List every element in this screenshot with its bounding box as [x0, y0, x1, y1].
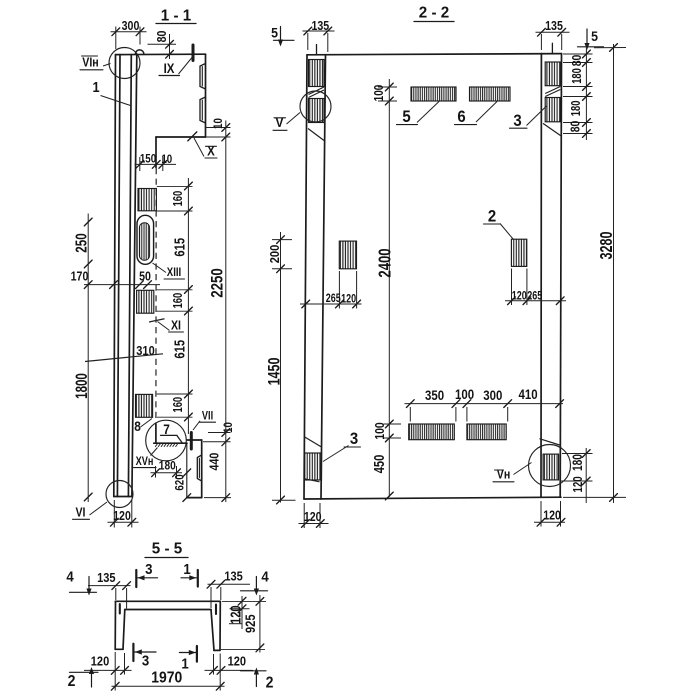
- svg-text:135: 135: [311, 19, 329, 33]
- svg-text:250: 250: [73, 233, 90, 253]
- svg-text:10: 10: [161, 153, 172, 166]
- svg-text:3280: 3280: [597, 231, 617, 259]
- svg-text:2: 2: [266, 674, 274, 692]
- svg-text:1: 1: [92, 79, 99, 95]
- svg-text:200: 200: [267, 245, 282, 264]
- svg-text:180: 180: [570, 454, 586, 471]
- svg-text:1 - 1: 1 - 1: [161, 7, 192, 24]
- svg-text:300: 300: [483, 388, 502, 403]
- svg-text:1: 1: [181, 655, 188, 672]
- svg-text:3: 3: [513, 112, 521, 130]
- svg-text:VI: VI: [75, 506, 85, 520]
- svg-text:180: 180: [570, 101, 584, 117]
- svg-text:80: 80: [568, 120, 582, 132]
- svg-text:120: 120: [572, 476, 586, 492]
- svg-text:615: 615: [171, 340, 188, 359]
- svg-text:10: 10: [212, 118, 225, 129]
- svg-text:160: 160: [172, 293, 186, 309]
- svg-text:120: 120: [543, 509, 561, 523]
- svg-text:XI: XI: [171, 319, 181, 333]
- svg-text:615: 615: [171, 238, 188, 257]
- svg-text:1800: 1800: [73, 373, 92, 399]
- svg-text:120: 120: [91, 653, 110, 668]
- svg-text:1450: 1450: [266, 358, 284, 386]
- svg-text:VIн: VIн: [82, 56, 98, 70]
- svg-text:135: 135: [224, 569, 243, 584]
- svg-text:5: 5: [402, 108, 410, 126]
- svg-text:XVн: XVн: [136, 456, 154, 468]
- svg-text:265: 265: [527, 289, 542, 303]
- svg-text:V: V: [275, 114, 283, 130]
- svg-text:440: 440: [208, 453, 222, 471]
- svg-text:1970: 1970: [151, 670, 182, 687]
- svg-text:5 - 5: 5 - 5: [152, 540, 183, 557]
- svg-text:50: 50: [139, 270, 151, 284]
- svg-text:925: 925: [243, 614, 258, 633]
- svg-text:180: 180: [159, 460, 176, 473]
- svg-text:170: 170: [71, 270, 89, 284]
- svg-text:8: 8: [134, 418, 141, 434]
- svg-text:120: 120: [304, 510, 322, 524]
- svg-text:2: 2: [488, 208, 496, 226]
- svg-text:120: 120: [113, 509, 131, 523]
- svg-text:1: 1: [183, 560, 190, 577]
- svg-text:160: 160: [172, 191, 186, 207]
- svg-text:VII: VII: [202, 411, 213, 423]
- svg-text:120: 120: [228, 653, 247, 668]
- svg-text:100: 100: [455, 387, 474, 402]
- svg-text:3: 3: [145, 560, 152, 577]
- svg-text:180: 180: [571, 68, 585, 84]
- svg-text:6: 6: [457, 108, 465, 126]
- svg-text:135: 135: [545, 19, 563, 33]
- svg-text:150: 150: [140, 153, 156, 166]
- svg-text:XIII: XIII: [167, 266, 181, 279]
- svg-text:300: 300: [122, 19, 140, 33]
- svg-text:410: 410: [518, 387, 537, 402]
- svg-text:5: 5: [271, 25, 278, 41]
- svg-text:3: 3: [142, 652, 149, 669]
- svg-text:2250: 2250: [208, 268, 227, 297]
- svg-text:4: 4: [66, 568, 73, 585]
- svg-text:2400: 2400: [376, 248, 395, 277]
- svg-text:100: 100: [373, 422, 387, 440]
- svg-text:80: 80: [570, 54, 584, 66]
- svg-text:450: 450: [370, 455, 387, 474]
- svg-text:80: 80: [155, 31, 169, 43]
- svg-text:2: 2: [68, 672, 76, 690]
- svg-text:135: 135: [97, 570, 116, 585]
- svg-text:120: 120: [512, 289, 527, 303]
- svg-text:10: 10: [222, 422, 235, 433]
- svg-text:120: 120: [227, 605, 244, 624]
- svg-text:5: 5: [591, 28, 598, 44]
- svg-text:350: 350: [425, 388, 444, 403]
- svg-text:620: 620: [174, 474, 187, 490]
- svg-text:2 - 2: 2 - 2: [419, 4, 450, 21]
- svg-text:120: 120: [341, 292, 356, 306]
- svg-text:160: 160: [172, 397, 186, 413]
- svg-text:100: 100: [373, 85, 386, 102]
- svg-text:265: 265: [326, 292, 341, 306]
- svg-text:3: 3: [350, 430, 358, 448]
- svg-text:IX: IX: [164, 61, 175, 76]
- svg-text:4: 4: [261, 568, 268, 585]
